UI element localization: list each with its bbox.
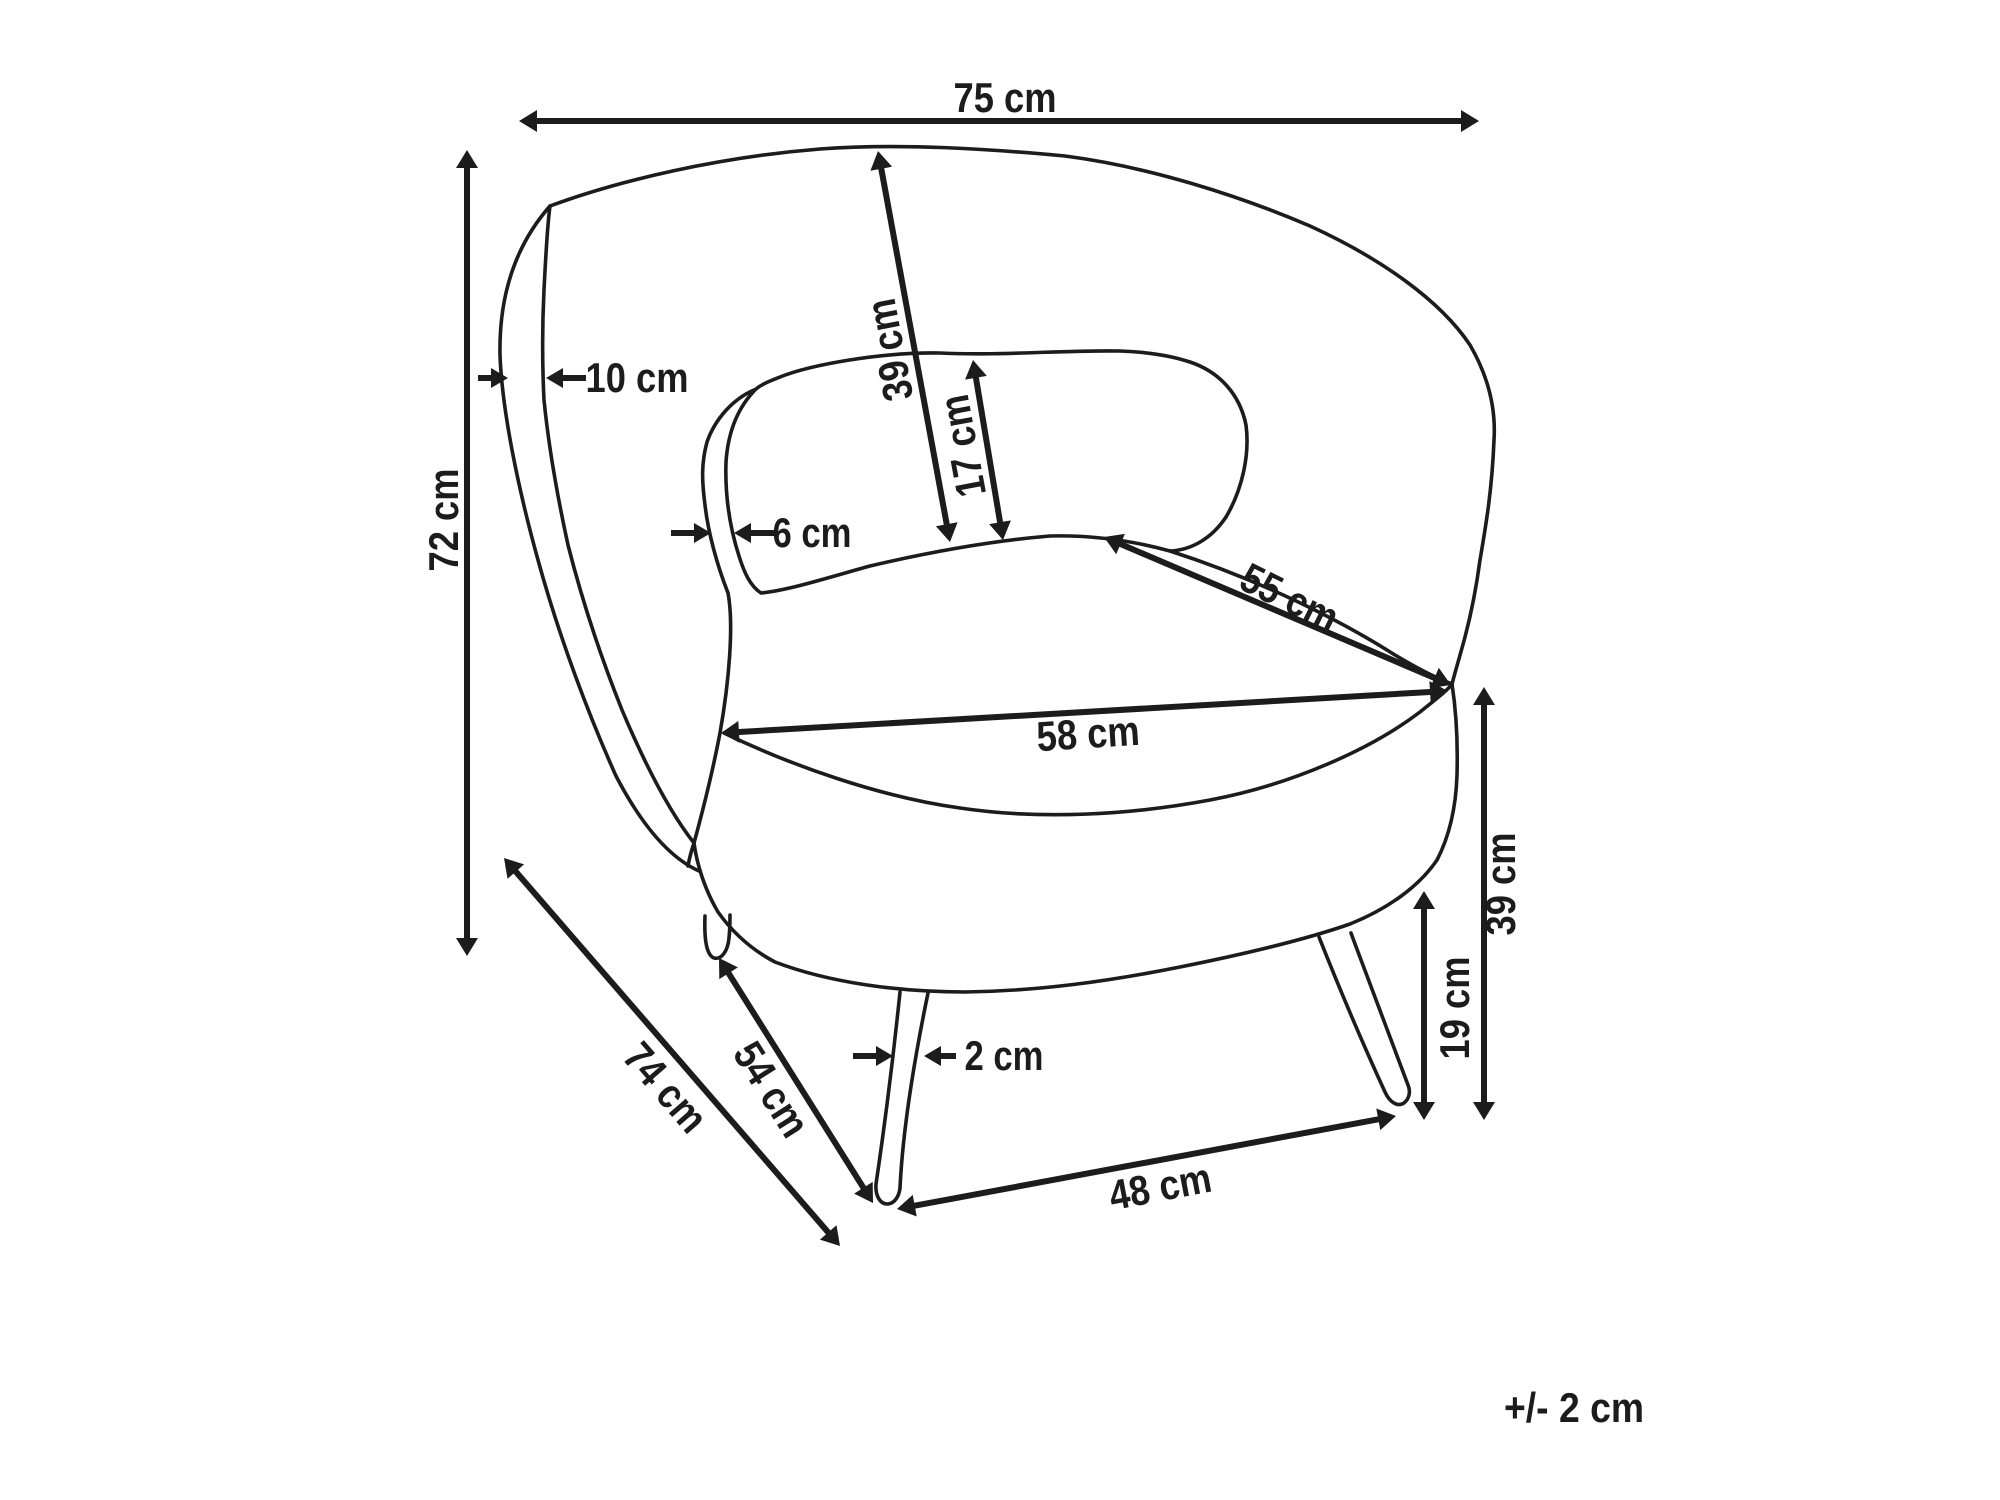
svg-text:19 cm: 19 cm <box>1431 957 1478 1060</box>
svg-text:10 cm: 10 cm <box>586 354 689 401</box>
svg-text:75 cm: 75 cm <box>954 74 1057 121</box>
svg-text:+/- 2 cm: +/- 2 cm <box>1504 1384 1644 1431</box>
svg-text:39 cm: 39 cm <box>1477 833 1524 936</box>
svg-text:72 cm: 72 cm <box>420 469 467 572</box>
svg-text:58 cm: 58 cm <box>1035 707 1141 760</box>
svg-text:6 cm: 6 cm <box>773 509 852 556</box>
svg-text:2 cm: 2 cm <box>965 1032 1044 1079</box>
